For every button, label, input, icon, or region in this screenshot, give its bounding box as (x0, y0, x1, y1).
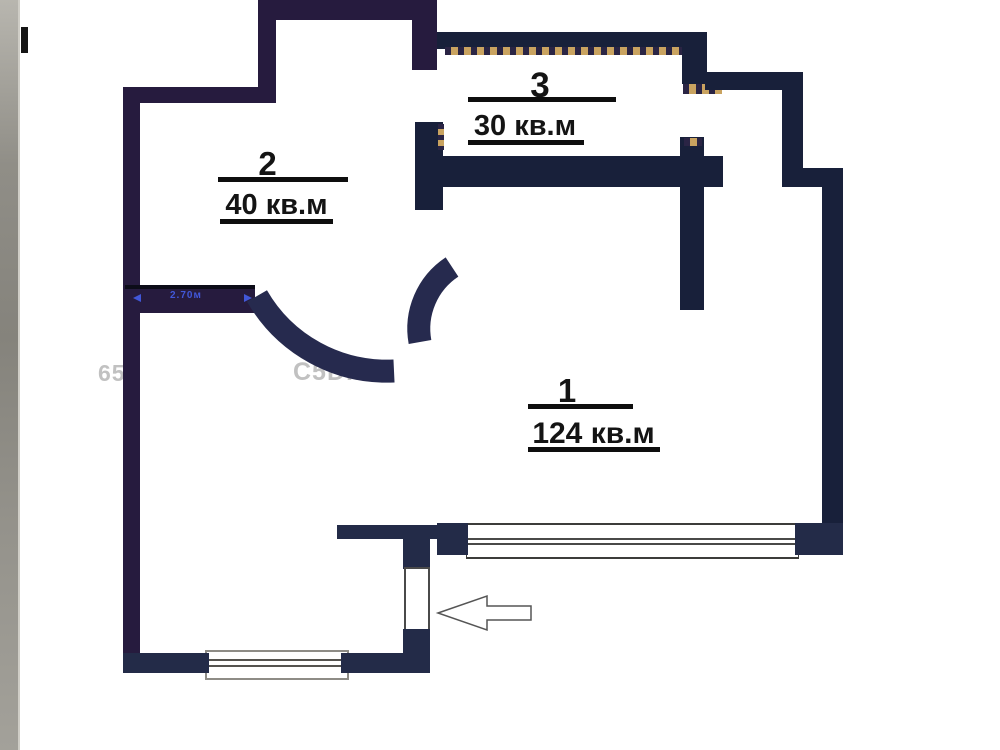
wall-step-lower (803, 168, 843, 187)
room-1-number: 1 (497, 374, 637, 407)
scan-edge-strip (0, 0, 20, 750)
window-line (467, 538, 798, 540)
room-1-area: 124 кв.м (528, 419, 659, 449)
window-line (207, 665, 347, 667)
scan-mark (21, 27, 28, 53)
wall-bottom-left (123, 653, 209, 673)
watermark-right: С5D.RU (293, 360, 392, 385)
hatch-stub (438, 124, 444, 150)
wall-room3-bottom (443, 156, 723, 187)
wall-step-right (782, 88, 803, 187)
dimension-arrow-left-icon (133, 294, 141, 302)
floor-plan: 65 С5D.RU 2 40 кв.м 3 (0, 0, 1000, 750)
dimension-arrow-right-icon (244, 294, 252, 302)
window-bottom-large (466, 523, 799, 559)
window-line (467, 543, 798, 545)
wall-window-block-left (437, 523, 468, 555)
watermark-left: 65 (98, 362, 126, 385)
window-bottom-left (205, 650, 349, 680)
wall-room3-top-corner (682, 32, 707, 84)
room-2-number: 2 (200, 147, 335, 180)
room-2-number-underline (218, 177, 348, 182)
room-2-area: 40 кв.м (218, 191, 335, 220)
wall-stub-top (412, 0, 437, 70)
room-3-area-underline (468, 140, 584, 145)
wall-hall-top (337, 525, 437, 539)
entrance-door-opening (404, 567, 430, 631)
wall-right (822, 187, 843, 555)
hatch-speck (684, 138, 702, 146)
room-1-area-underline (528, 447, 660, 452)
door-arc-small (419, 267, 452, 342)
window-hatch-room3-top (445, 47, 682, 55)
wall-vestibule-upper (403, 539, 430, 569)
wall-window-block-right (795, 523, 843, 555)
wall-bottom-right (341, 653, 430, 673)
entrance-arrow-icon (438, 596, 531, 630)
room-2-area-underline (220, 219, 333, 224)
wall-dimension-label: 2.70м (170, 291, 202, 301)
room-1-number-underline (528, 404, 633, 409)
room-3-number-underline (468, 97, 616, 102)
wall-room2-top (123, 87, 276, 103)
window-line (207, 659, 347, 661)
room-3-area: 30 кв.м (468, 112, 582, 141)
wall-left (123, 87, 140, 673)
wall-top-band (258, 0, 434, 20)
